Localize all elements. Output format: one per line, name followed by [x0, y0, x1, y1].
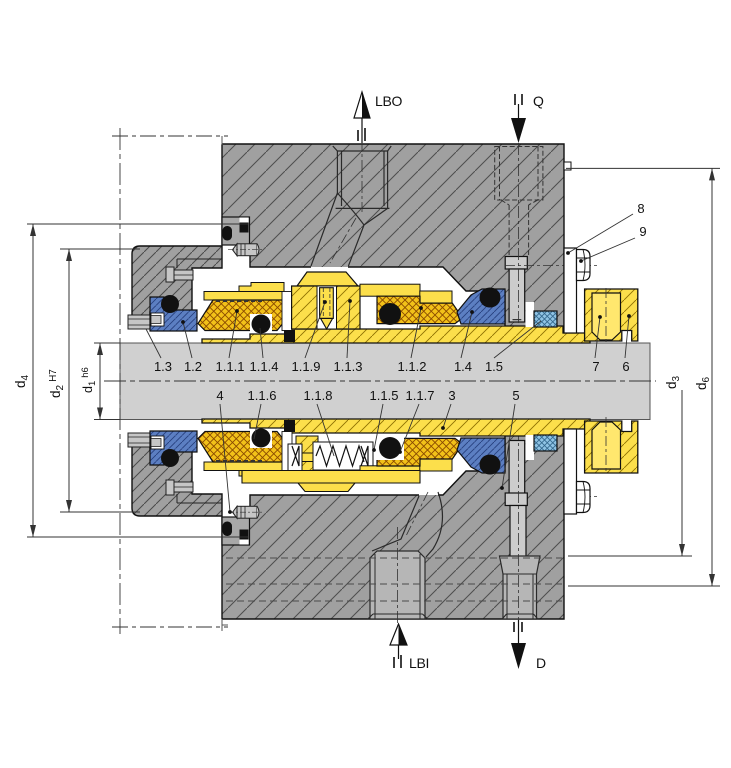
svg-text:1.1.5: 1.1.5 [370, 388, 399, 403]
svg-text:4: 4 [216, 388, 223, 403]
svg-text:1.3: 1.3 [154, 359, 172, 374]
svg-text:1.1.8: 1.1.8 [304, 388, 333, 403]
svg-text:LBI: LBI [409, 655, 429, 671]
svg-text:5: 5 [512, 388, 519, 403]
svg-text:1.1.1: 1.1.1 [216, 359, 245, 374]
svg-text:7: 7 [592, 359, 599, 374]
svg-text:3: 3 [448, 388, 455, 403]
svg-text:D: D [536, 655, 546, 671]
svg-text:1.1.2: 1.1.2 [398, 359, 427, 374]
svg-text:1.4: 1.4 [454, 359, 472, 374]
svg-text:1.2: 1.2 [184, 359, 202, 374]
svg-text:LBO: LBO [375, 93, 403, 109]
svg-text:6: 6 [622, 359, 629, 374]
svg-text:9: 9 [639, 224, 646, 239]
svg-text:1.1.4: 1.1.4 [250, 359, 279, 374]
svg-text:1.1.3: 1.1.3 [334, 359, 363, 374]
svg-text:Q: Q [533, 93, 544, 109]
svg-text:1.1.6: 1.1.6 [248, 388, 277, 403]
svg-text:1.5: 1.5 [485, 359, 503, 374]
svg-text:1.1.9: 1.1.9 [292, 359, 321, 374]
svg-text:1.1.7: 1.1.7 [406, 388, 435, 403]
svg-text:8: 8 [637, 201, 644, 216]
